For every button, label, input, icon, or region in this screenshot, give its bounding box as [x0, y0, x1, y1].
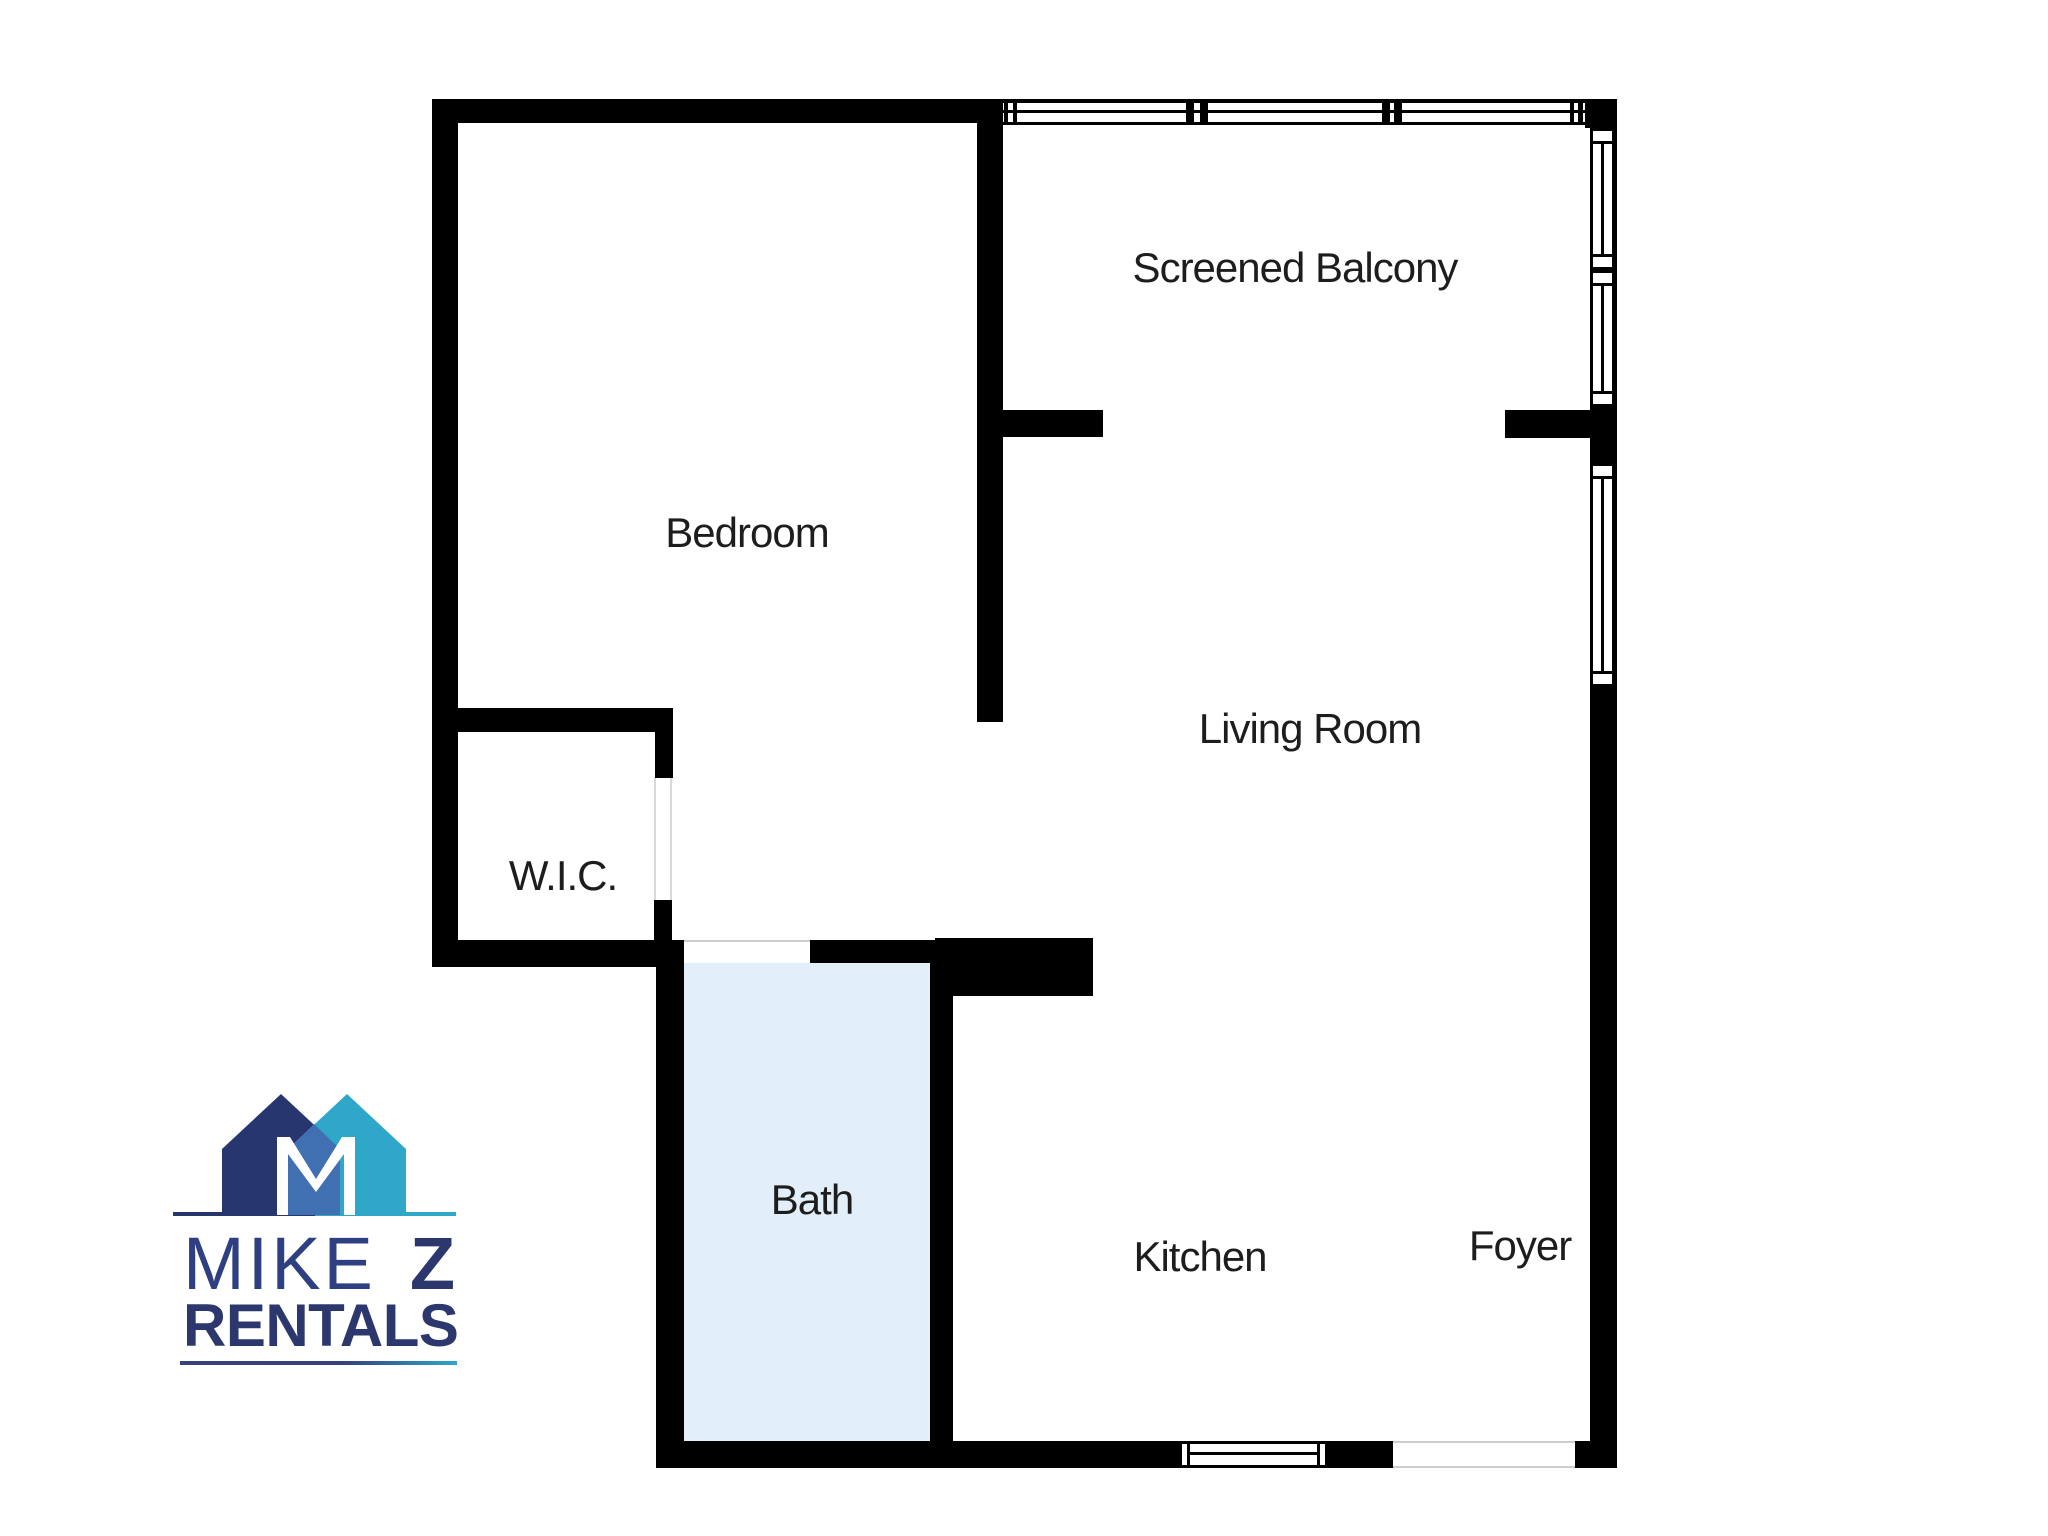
wall-wic-right-upper — [655, 708, 673, 778]
bath-door-threshold — [684, 940, 810, 942]
wic-door-jamb-right — [670, 778, 672, 900]
window-right-3-frame-line — [1590, 463, 1612, 466]
wall-kitchen-block — [935, 938, 1093, 996]
room-label-bath: Bath — [771, 1176, 853, 1224]
wall-bottom-mid-segment — [1328, 1441, 1393, 1468]
window-kitchen-line-top — [1179, 1441, 1328, 1444]
room-label-wic: W.I.C. — [509, 852, 617, 900]
wall-outer-left — [432, 99, 458, 967]
balcony-screen-cap-right-2 — [1578, 99, 1583, 125]
window-kitchen-cap-line — [1187, 1441, 1190, 1468]
logo-text-rentals: RENTALS — [183, 1291, 458, 1360]
room-label-screened-balcony: Screened Balcony — [1133, 244, 1458, 292]
window-right-3-frame-line — [1590, 684, 1612, 687]
window-kitchen-cap-line — [1179, 1441, 1182, 1468]
window-right-2-edge-line — [1590, 270, 1593, 407]
window-right-1-frame-line — [1590, 128, 1612, 131]
room-label-bedroom: Bedroom — [665, 509, 828, 557]
balcony-screen-line-bottom — [1003, 122, 1585, 125]
window-right-1-center-line — [1601, 141, 1604, 257]
balcony-screen-mullion-2a — [1382, 99, 1390, 125]
mike-z-rentals-logo-mark — [150, 1080, 510, 1230]
wall-bedroom-right — [977, 99, 1003, 722]
wall-stub-balcony-right — [1505, 410, 1590, 438]
window-right-3-edge-line — [1590, 463, 1593, 687]
balcony-screen-cap-right-1 — [1570, 99, 1574, 125]
window-kitchen-line-bottom — [1179, 1465, 1328, 1468]
room-label-foyer: Foyer — [1469, 1222, 1571, 1270]
window-right-2-center-line — [1601, 283, 1604, 394]
room-label-living-room: Living Room — [1199, 705, 1421, 753]
window-right-2-frame-line — [1590, 270, 1612, 273]
balcony-screen-line-top — [1003, 99, 1585, 103]
balcony-screen-cap-left-1 — [1004, 99, 1008, 125]
wall-bath-left — [656, 940, 684, 1468]
wall-wic-bottom — [432, 940, 684, 967]
wall-wic-top — [432, 708, 673, 732]
window-kitchen-cap-line — [1317, 1441, 1320, 1468]
window-kitchen-line-mid — [1189, 1452, 1317, 1455]
balcony-screen-mullion-1b — [1200, 99, 1208, 125]
logo-underline-rule — [180, 1361, 457, 1365]
floor-plan-page: Screened Balcony Bedroom Living Room W.I… — [0, 0, 2048, 1536]
window-right-1-edge-line — [1590, 128, 1593, 270]
wall-bottom-left-segment — [656, 1441, 1179, 1468]
balcony-screen-line-mid — [1003, 110, 1585, 113]
entry-door-threshold-top — [1393, 1441, 1575, 1443]
wall-bedroom-top — [432, 99, 1003, 123]
balcony-screen-mullion-2b — [1394, 99, 1402, 125]
window-right-3-center-line — [1601, 476, 1604, 674]
wall-bath-top — [810, 940, 935, 963]
wall-bath-right — [930, 940, 953, 1468]
balcony-screen-cap-left-2 — [1013, 99, 1017, 125]
balcony-screen-mullion-1a — [1186, 99, 1194, 125]
window-kitchen-cap-line — [1325, 1441, 1328, 1468]
window-right-2-frame-line — [1590, 404, 1612, 407]
room-label-kitchen: Kitchen — [1133, 1233, 1266, 1281]
wic-door-jamb-left — [654, 778, 656, 900]
entry-door-threshold-bottom — [1393, 1466, 1575, 1468]
wall-stub-balcony-left — [1003, 410, 1103, 437]
wall-corner-post-topright — [1585, 99, 1617, 128]
